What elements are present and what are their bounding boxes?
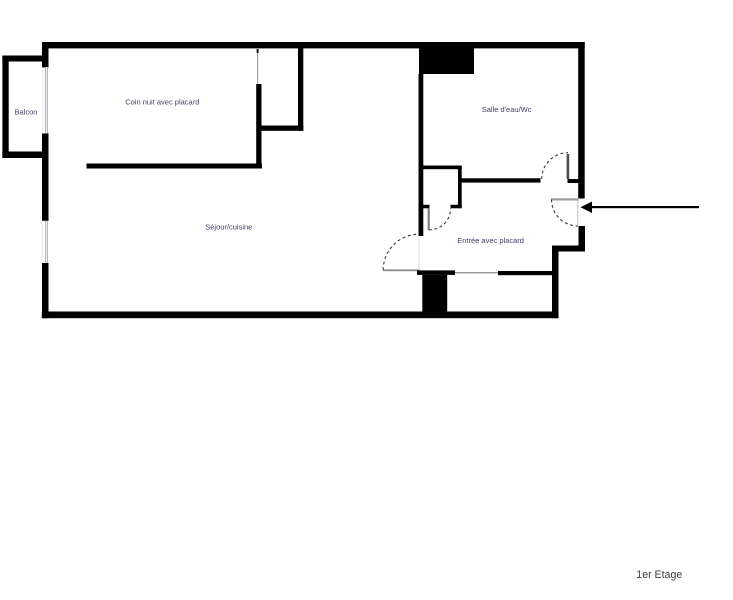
svg-text:Coin nuit avec placard: Coin nuit avec placard [125, 98, 199, 107]
svg-text:1er Etage: 1er Etage [636, 569, 682, 581]
svg-text:Salle d'eau/Wc: Salle d'eau/Wc [482, 105, 532, 114]
svg-text:Entrée avec placard: Entrée avec placard [457, 236, 524, 245]
svg-text:Séjour/cuisine: Séjour/cuisine [205, 222, 252, 231]
svg-text:Balcon: Balcon [15, 108, 38, 117]
